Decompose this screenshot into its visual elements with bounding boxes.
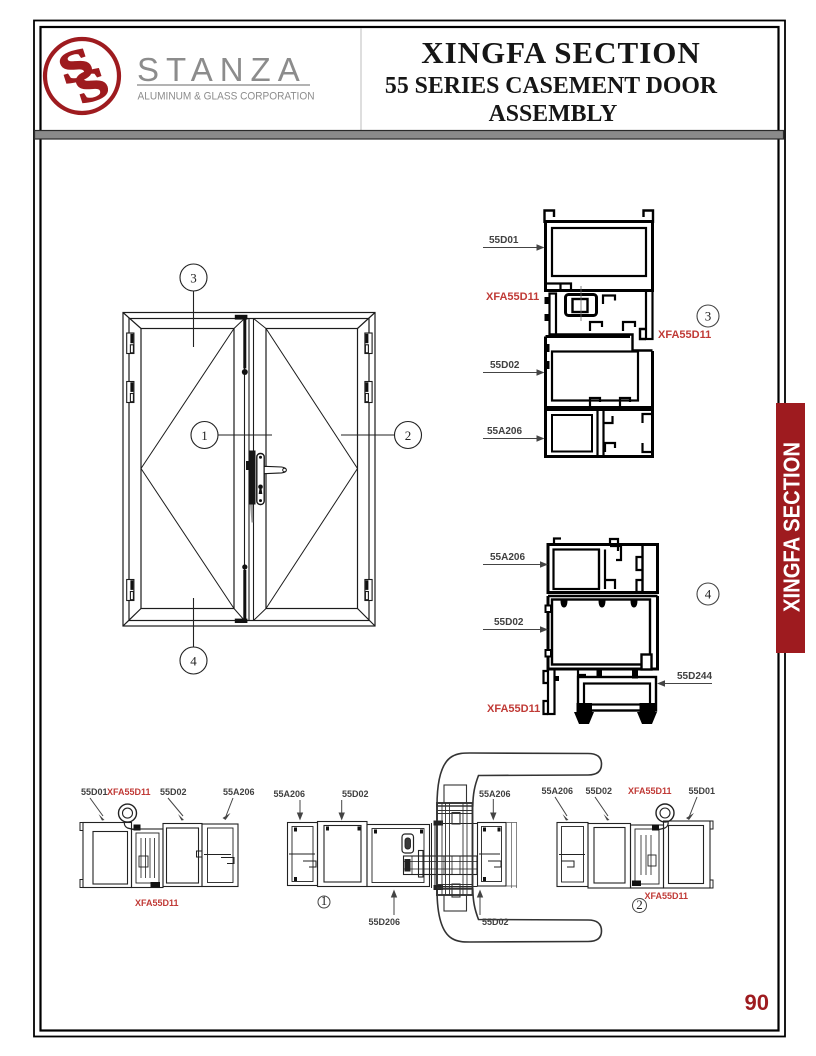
svg-text:XINGFA SECTION: XINGFA SECTION: [779, 442, 805, 612]
svg-text:XINGFA SECTION: XINGFA SECTION: [421, 35, 701, 70]
svg-text:XFA55D11: XFA55D11: [658, 329, 711, 341]
svg-text:ALUMINUM & GLASS CORPORATION: ALUMINUM & GLASS CORPORATION: [138, 91, 315, 103]
svg-text:55A206: 55A206: [542, 786, 574, 796]
svg-text:55A206: 55A206: [479, 789, 511, 799]
svg-text:4: 4: [190, 654, 197, 669]
svg-text:2: 2: [405, 428, 412, 443]
svg-text:STANZA: STANZA: [137, 51, 307, 88]
svg-text:XFA55D11: XFA55D11: [486, 291, 539, 303]
svg-text:55D01: 55D01: [689, 786, 716, 796]
svg-text:S: S: [69, 58, 115, 114]
svg-text:XFA55D11: XFA55D11: [645, 891, 689, 901]
svg-text:XFA55D11: XFA55D11: [487, 703, 540, 715]
svg-text:55D02: 55D02: [494, 617, 524, 628]
svg-text:55D01: 55D01: [489, 235, 519, 246]
svg-text:55D02: 55D02: [342, 789, 369, 799]
svg-text:XFA55D11: XFA55D11: [628, 786, 672, 796]
svg-text:55A206: 55A206: [223, 787, 255, 797]
svg-text:1: 1: [201, 428, 208, 443]
svg-text:XFA55D11: XFA55D11: [107, 787, 151, 797]
svg-text:XFA55D11: XFA55D11: [135, 898, 179, 908]
svg-text:2: 2: [636, 897, 643, 912]
svg-text:3: 3: [190, 271, 197, 286]
svg-text:55A206: 55A206: [487, 426, 522, 437]
svg-text:55D244: 55D244: [677, 671, 712, 682]
svg-text:55 SERIES CASEMENT DOOR: 55 SERIES CASEMENT DOOR: [385, 73, 718, 99]
svg-text:55D02: 55D02: [490, 360, 520, 371]
svg-text:55D02: 55D02: [482, 917, 509, 927]
svg-text:55D02: 55D02: [586, 786, 613, 796]
svg-text:55A206: 55A206: [490, 552, 525, 563]
svg-text:4: 4: [705, 587, 712, 602]
svg-text:55D02: 55D02: [160, 787, 187, 797]
svg-text:55D01: 55D01: [81, 787, 108, 797]
svg-text:ASSEMBLY: ASSEMBLY: [489, 101, 618, 127]
svg-text:90: 90: [745, 990, 769, 1015]
svg-text:1: 1: [321, 893, 328, 908]
svg-text:3: 3: [705, 309, 712, 324]
svg-text:55A206: 55A206: [274, 789, 306, 799]
svg-text:55D206: 55D206: [369, 917, 401, 927]
